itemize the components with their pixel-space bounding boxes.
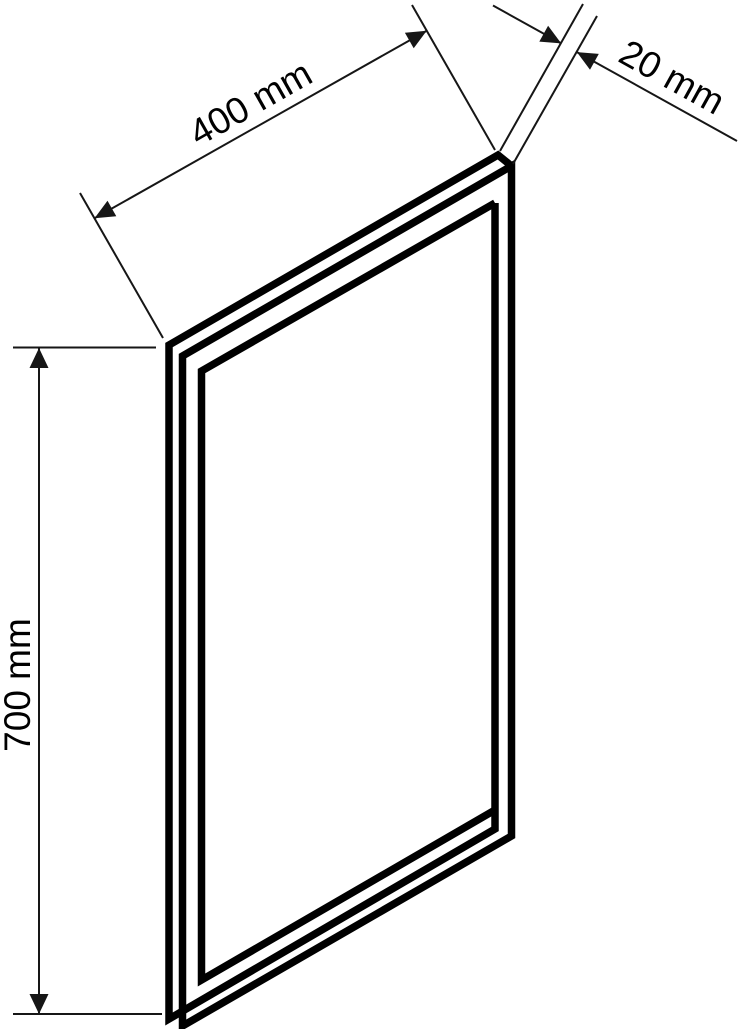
width-extension-line-left (80, 193, 163, 338)
mirror-panel (169, 155, 512, 1026)
depth-arrow-left-icon (539, 26, 561, 44)
depth-dimension: 20 mm (493, 4, 737, 164)
height-arrow-top-icon (30, 348, 49, 368)
width-arrow-left-icon (95, 201, 117, 219)
mirror-front-face-outline (169, 155, 512, 1019)
width-arrow-right-icon (405, 31, 427, 49)
width-dimension-line (95, 31, 427, 219)
depth-arrow-right-icon (577, 52, 599, 70)
height-dimension: 700 mm (0, 348, 162, 1015)
width-dimension: 400 mm (80, 5, 495, 338)
depth-dimension-label: 20 mm (613, 32, 732, 123)
width-extension-line-right (412, 5, 495, 150)
mirror-dimension-drawing: 400 mm 20 mm 700 mm (0, 0, 750, 1029)
depth-extension-line-front (500, 4, 583, 151)
height-arrow-bottom-icon (30, 994, 49, 1014)
height-dimension-label: 700 mm (0, 618, 38, 752)
technical-drawing-canvas: 400 mm 20 mm 700 mm (0, 0, 750, 1029)
